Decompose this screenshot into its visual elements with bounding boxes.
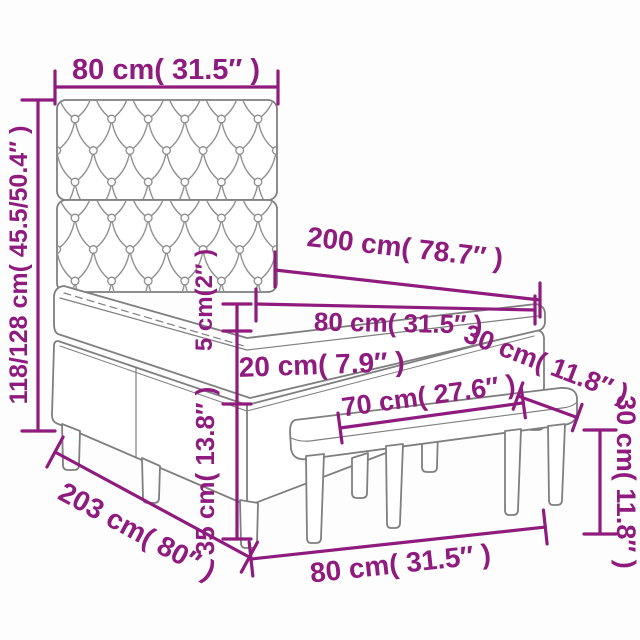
- bench-leg: [548, 424, 565, 505]
- headboard-height-label: 118/128 cm( 45.5/50.4″ ): [5, 126, 33, 405]
- dim-headboard-height: 118/128 cm( 45.5/50.4″ ): [5, 100, 55, 431]
- diagram-stage: 80 cm( 31.5″ ) 118/128 cm( 45.5/50.4″ ) …: [0, 0, 640, 640]
- dim-tick: [47, 437, 63, 467]
- dim-bench-height: 30 cm( 11.8″ ): [584, 395, 640, 569]
- bed-dimension-diagram: 80 cm( 31.5″ ) 118/128 cm( 45.5/50.4″ ) …: [0, 0, 640, 640]
- bed-length-label: 200 cm( 78.7″ ): [305, 221, 504, 274]
- bed-leg: [352, 453, 368, 498]
- dim-bed-length: 200 cm( 78.7″ ): [275, 221, 540, 317]
- mattress-height-label: 5 cm(2″ ): [191, 249, 218, 351]
- mattress-width-label: 80 cm( 31.5″ ): [314, 307, 483, 340]
- headboard-width-label: 80 cm( 31.5″ ): [72, 54, 260, 86]
- headboard-lower-tufting: [58, 201, 276, 291]
- leg-height-label: 35 cm( 13.8″ ): [190, 387, 220, 556]
- dim-tick: [543, 510, 547, 544]
- dim-headboard-width: 80 cm( 31.5″ ): [55, 54, 278, 104]
- bench-leg: [505, 429, 521, 515]
- base-height-label: 20 cm( 7.9″ ): [238, 346, 405, 383]
- bench-height-label: 30 cm( 11.8″ ): [611, 395, 640, 569]
- bench-leg: [386, 444, 403, 528]
- bed-leg: [142, 458, 160, 503]
- bench-leg: [306, 454, 324, 543]
- dim-line: [275, 270, 540, 300]
- bed-width-label: 80 cm( 31.5″ ): [308, 538, 492, 588]
- headboard-upper-tufting: [58, 101, 276, 199]
- headboard: [57, 100, 277, 292]
